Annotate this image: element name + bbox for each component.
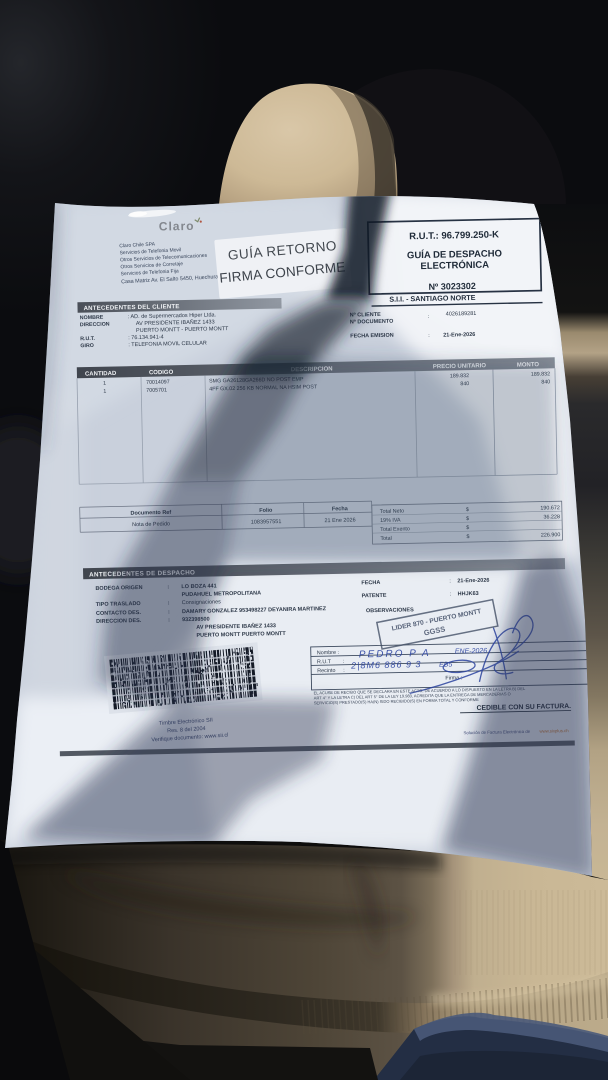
svg-text:70014097: 70014097 bbox=[146, 379, 170, 385]
svg-text:ENE-2026: ENE-2026 bbox=[455, 648, 488, 656]
svg-text:NOMBRE: NOMBRE bbox=[80, 315, 104, 322]
svg-text:PATENTE: PATENTE bbox=[362, 593, 387, 600]
svg-text:21-Ene-2026: 21-Ene-2026 bbox=[457, 578, 489, 585]
svg-text:21-Ene-2026: 21-Ene-2026 bbox=[443, 332, 475, 339]
svg-text:CANTIDAD: CANTIDAD bbox=[85, 371, 117, 378]
svg-text:FECHA EMISION: FECHA EMISION bbox=[350, 333, 394, 340]
svg-text:GIRO: GIRO bbox=[80, 343, 94, 349]
svg-text:1: 1 bbox=[103, 389, 106, 395]
svg-text:: 76.134.941-4: : 76.134.941-4 bbox=[128, 334, 164, 341]
svg-text:1: 1 bbox=[103, 381, 106, 387]
svg-text:Nombre :: Nombre : bbox=[317, 650, 339, 656]
svg-text:FECHA: FECHA bbox=[361, 580, 380, 586]
svg-text:OBSERVACIONES: OBSERVACIONES bbox=[366, 607, 414, 614]
svg-text:Nº DOCUMENTO: Nº DOCUMENTO bbox=[350, 319, 394, 326]
svg-text:R.U.T.: R.U.T. bbox=[80, 336, 95, 342]
svg-text:S.I.I. - SANTIAGO NORTE: S.I.I. - SANTIAGO NORTE bbox=[389, 293, 476, 304]
svg-text:R.U.T.: 96.799.250-K: R.U.T.: 96.799.250-K bbox=[409, 229, 499, 242]
svg-text::: : bbox=[343, 659, 345, 665]
svg-text:2|8M6 886 9 3: 2|8M6 886 9 3 bbox=[350, 659, 422, 670]
svg-text:Claro: Claro bbox=[159, 219, 195, 234]
svg-text::: : bbox=[343, 668, 345, 674]
svg-text:R.U.T: R.U.T bbox=[317, 659, 332, 665]
svg-text:CODIGO: CODIGO bbox=[149, 370, 174, 377]
svg-text:HHJK63: HHJK63 bbox=[458, 591, 479, 597]
svg-text:Recinto: Recinto bbox=[317, 668, 335, 674]
svg-text:4026189281: 4026189281 bbox=[446, 311, 477, 318]
svg-text:DIRECCION: DIRECCION bbox=[80, 322, 110, 329]
svg-text:ELECTRÓNICA: ELECTRÓNICA bbox=[420, 259, 489, 272]
svg-text:7005701: 7005701 bbox=[146, 387, 167, 393]
svg-text:Nº 3023302: Nº 3023302 bbox=[428, 281, 476, 292]
